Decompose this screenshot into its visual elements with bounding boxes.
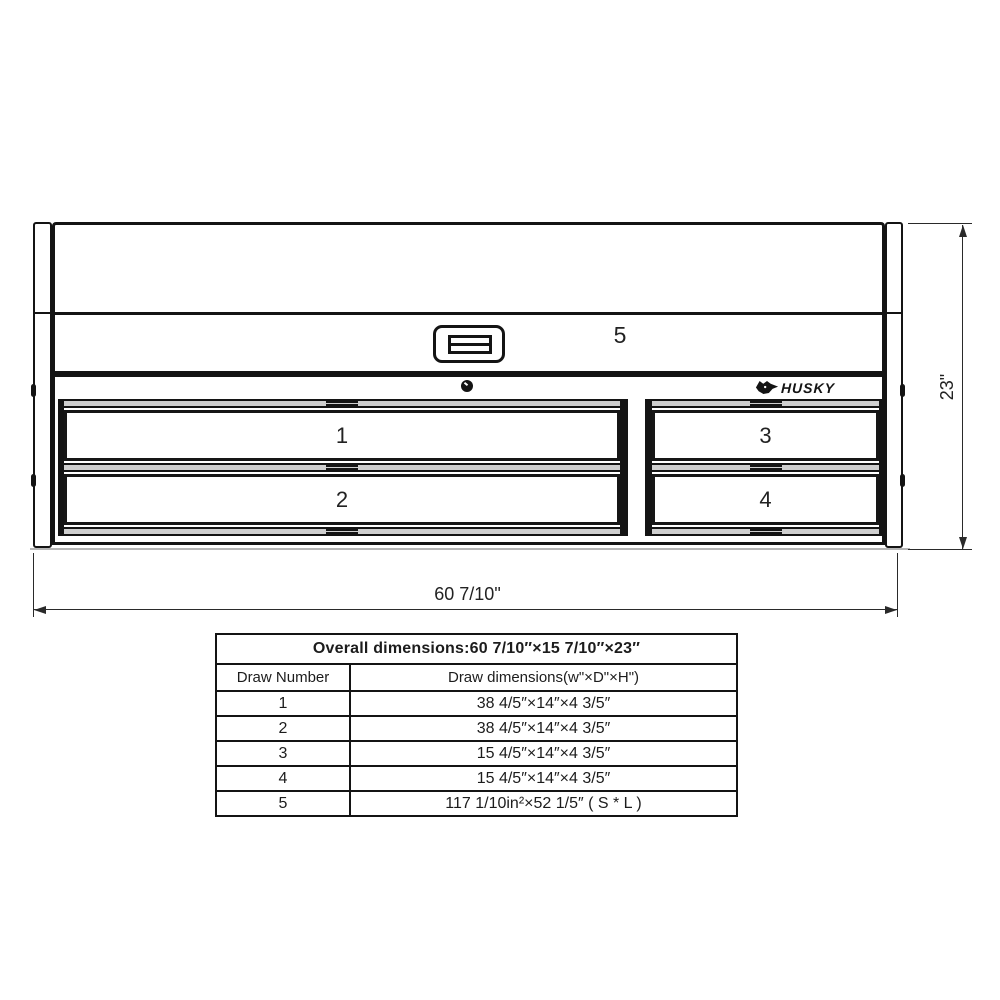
drawer-slide-rail: [64, 463, 620, 472]
table-row: 2 38 4/5″×14″×4 3/5″: [217, 717, 736, 742]
keyhole-lock-icon: [461, 380, 473, 392]
drawer-3-face: 3: [652, 410, 879, 461]
drawer-3-label: 3: [759, 423, 771, 449]
drawer-area: 1 2 3 4: [55, 398, 882, 540]
chest-front-top-panel: 5: [55, 315, 882, 371]
arrowhead-up-icon: [959, 225, 967, 237]
right-post-divider-line: [887, 312, 901, 314]
row-number: 3: [217, 742, 351, 765]
latch-handle-icon: [433, 325, 505, 363]
height-extension-line-bottom: [908, 549, 972, 550]
row-number: 5: [217, 792, 351, 815]
drawer-4-label: 4: [759, 487, 771, 513]
tool-chest-drawing: 5 HUSKY 1 2: [52, 222, 885, 545]
table-row: 1 38 4/5″×14″×4 3/5″: [217, 692, 736, 717]
husky-logo: HUSKY: [755, 377, 835, 398]
right-hinge-icon: [900, 384, 905, 397]
row-number: 2: [217, 717, 351, 740]
left-side-post: [33, 222, 52, 548]
width-dimension-label: 60 7/10": [395, 584, 540, 605]
table-row: 3 15 4/5″×14″×4 3/5″: [217, 742, 736, 767]
logo-band: HUSKY: [55, 377, 882, 398]
chest-lid-panel: [55, 225, 882, 315]
drawer-slide-rail: [64, 527, 620, 536]
husky-logo-text: HUSKY: [781, 380, 836, 396]
latch-handle-inner: [448, 335, 492, 354]
table-row: 4 15 4/5″×14″×4 3/5″: [217, 767, 736, 792]
row-dimensions: 15 4/5″×14″×4 3/5″: [351, 742, 736, 765]
tool-chest-spec-sheet: 5 HUSKY 1 2: [0, 0, 1000, 1000]
row-dimensions: 38 4/5″×14″×4 3/5″: [351, 692, 736, 715]
arrowhead-down-icon: [959, 537, 967, 549]
table-header-row: Draw Number Draw dimensions(w"×D"×H"): [217, 665, 736, 692]
height-extension-line-top: [908, 223, 972, 224]
left-hinge-icon: [31, 384, 36, 397]
dimensions-table: Overall dimensions:60 7/10″×15 7/10″×23″…: [215, 633, 738, 817]
drawer-4-face: 4: [652, 474, 879, 525]
drawer-1-face: 1: [64, 410, 620, 461]
right-drawer-bank: 3 4: [645, 399, 886, 536]
table-title: Overall dimensions:60 7/10″×15 7/10″×23″: [217, 635, 736, 665]
height-dimension-line: [962, 225, 963, 549]
arrowhead-left-icon: [34, 606, 46, 614]
drawer-slide-rail: [64, 399, 620, 408]
drawer-2-face: 2: [64, 474, 620, 525]
right-side-post: [885, 222, 903, 548]
drawer-slide-rail: [652, 399, 879, 408]
height-dimension-label: 23": [937, 366, 959, 408]
width-extension-line-right: [897, 553, 898, 617]
right-hinge-icon: [900, 474, 905, 487]
row-number: 4: [217, 767, 351, 790]
arrowhead-right-icon: [885, 606, 897, 614]
floor-line: [30, 548, 910, 550]
row-dimensions: 15 4/5″×14″×4 3/5″: [351, 767, 736, 790]
drawer-2-label: 2: [336, 487, 348, 513]
left-drawer-bank: 1 2: [58, 399, 628, 536]
row-dimensions: 117 1/10in²×52 1/5″ ( S * L ): [351, 792, 736, 815]
row-number: 1: [217, 692, 351, 715]
compartment-5-label: 5: [603, 322, 637, 349]
drawer-slide-rail: [652, 527, 879, 536]
column-header-draw-number: Draw Number: [217, 665, 351, 690]
table-row: 5 117 1/10in²×52 1/5″ ( S * L ): [217, 792, 736, 815]
left-post-divider-line: [35, 312, 50, 314]
row-dimensions: 38 4/5″×14″×4 3/5″: [351, 717, 736, 740]
width-dimension-line: [34, 609, 897, 610]
drawer-slide-rail: [652, 463, 879, 472]
husky-dog-icon: [755, 379, 779, 396]
drawer-1-label: 1: [336, 423, 348, 449]
column-header-draw-dimensions: Draw dimensions(w"×D"×H"): [351, 665, 736, 690]
left-hinge-icon: [31, 474, 36, 487]
